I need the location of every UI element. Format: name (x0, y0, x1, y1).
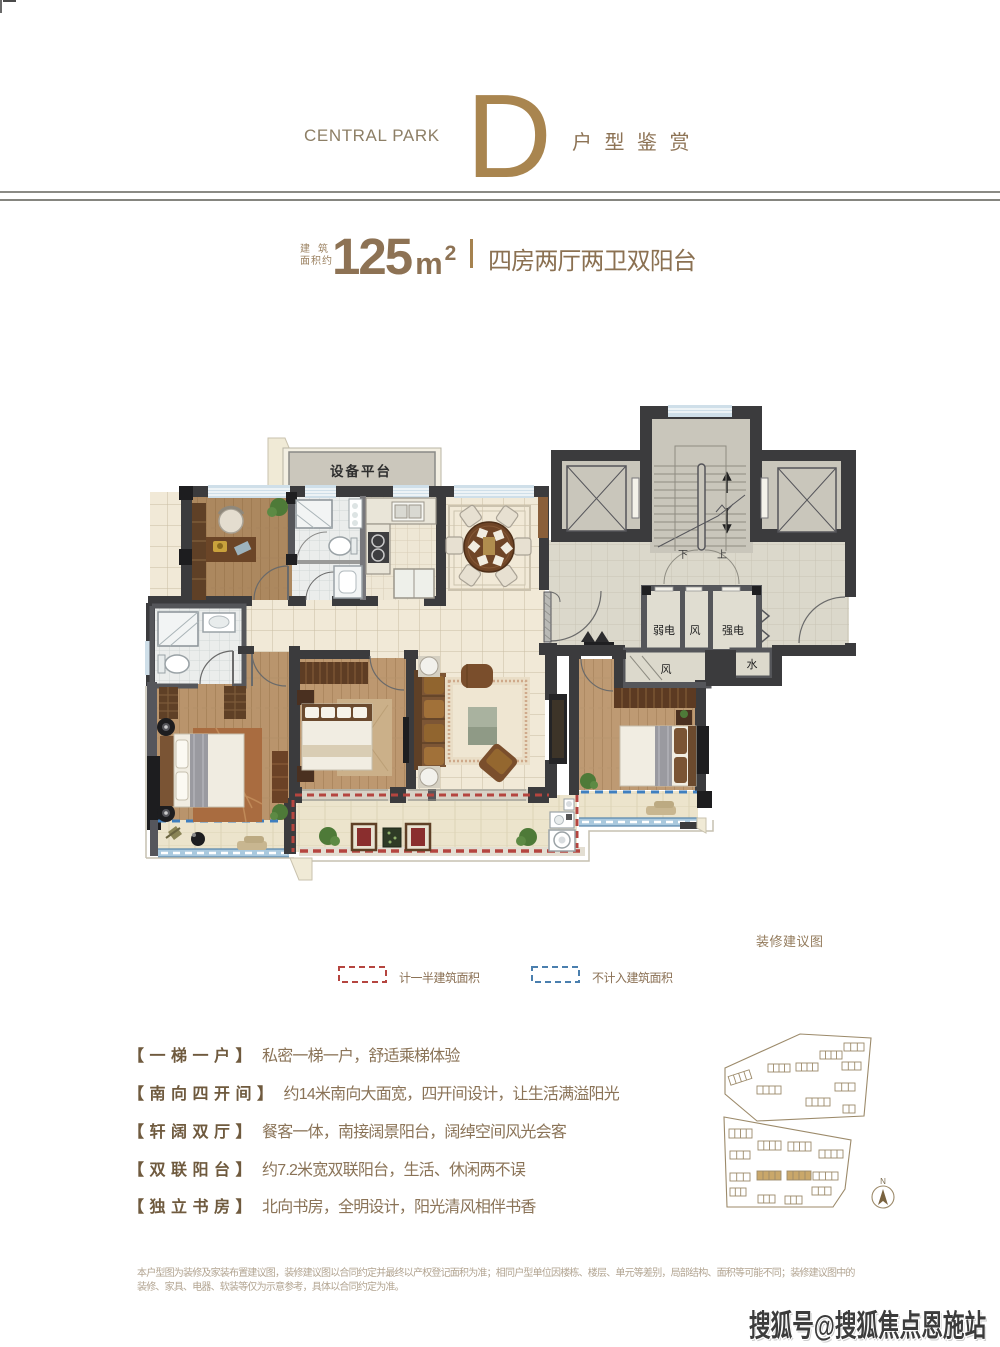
svg-text:风: 风 (661, 663, 672, 676)
svg-text:下: 下 (678, 550, 688, 561)
svg-text:风: 风 (690, 624, 701, 637)
svg-text:上: 上 (717, 549, 727, 561)
svg-text:N: N (880, 1177, 886, 1186)
svg-text:弱电: 弱电 (653, 624, 675, 637)
svg-text:水: 水 (747, 658, 758, 671)
svg-text:强电: 强电 (722, 624, 744, 637)
svg-text:设备平台: 设备平台 (330, 463, 392, 479)
